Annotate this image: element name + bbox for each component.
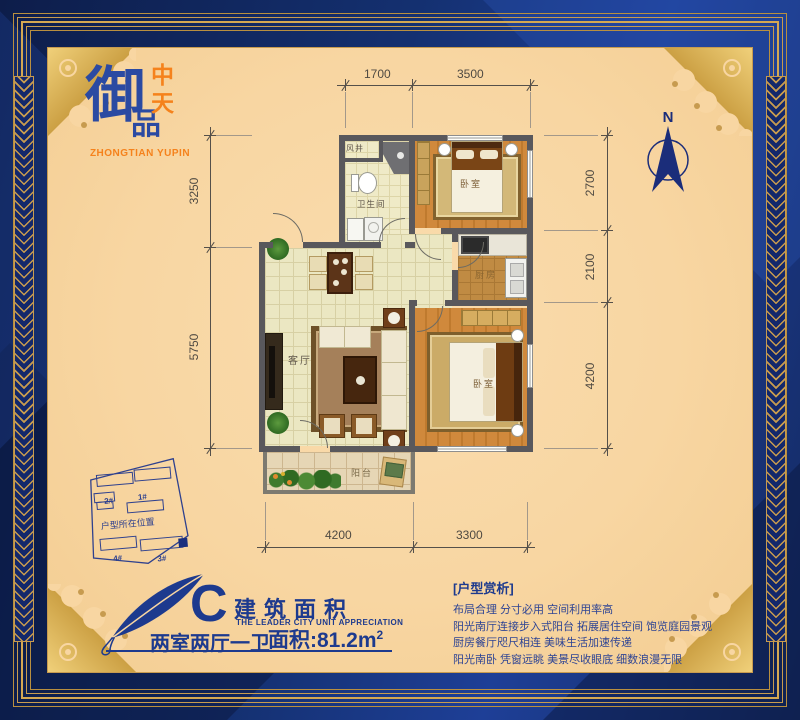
dim-tick <box>601 448 613 449</box>
dim-label: 4200 <box>583 354 597 398</box>
site-building <box>100 536 137 550</box>
dim-label: 2700 <box>583 161 597 205</box>
dim-tick <box>601 230 613 231</box>
wall <box>445 300 533 306</box>
north-label: N <box>663 109 674 126</box>
toilet-bowl <box>358 172 377 194</box>
analysis-title: [户型赏析] <box>453 578 745 597</box>
floor-plan: 风井 卫生间 卧室 厨房 客厅 卧室 阳台 <box>255 130 540 505</box>
dining-chair <box>355 256 373 272</box>
analysis-line: 布局合理 分寸必用 空间利用率高 <box>453 602 745 619</box>
wall <box>409 135 415 234</box>
extension-line <box>544 448 598 449</box>
loveseat <box>319 326 371 348</box>
extension-line <box>413 502 414 540</box>
sink-basin <box>510 280 524 294</box>
dim-label: 2100 <box>583 245 597 289</box>
dim-tick <box>265 541 266 553</box>
armchair <box>351 414 377 438</box>
dining-chair <box>355 274 373 290</box>
wall <box>330 446 415 452</box>
tv <box>269 346 275 398</box>
wall <box>339 135 533 141</box>
room-label-balcony: 阳台 <box>351 466 373 479</box>
bed-blanket <box>496 343 514 421</box>
side-table <box>383 308 405 328</box>
extension-line <box>527 502 528 540</box>
wall <box>405 242 415 248</box>
wall <box>339 242 381 248</box>
dim-tick <box>413 541 414 553</box>
door-arc-entry <box>273 213 303 242</box>
washer-door-icon <box>368 222 379 233</box>
title-underline <box>106 650 392 652</box>
analysis-line: 阳光南厅连接步入式阳台 拓展居住空间 饱览庭园景观 <box>453 619 745 636</box>
poster: 御 品 中 天 ZHONGTIAN YUPIN N <box>0 0 800 720</box>
nightstand <box>505 143 518 156</box>
dim-line-top <box>337 85 538 86</box>
wall <box>303 242 339 248</box>
lamp-icon <box>388 312 400 324</box>
room-label-living: 客厅 <box>288 352 312 367</box>
coffee-table <box>343 356 377 404</box>
chevron-column-left <box>14 76 34 642</box>
logo-cn-top: 中 <box>151 64 174 87</box>
wall <box>339 158 383 162</box>
nightstand <box>438 143 451 156</box>
bathroom-sink <box>347 218 364 241</box>
building-label: 2# <box>104 496 114 506</box>
plant <box>267 412 289 434</box>
window <box>447 135 503 141</box>
dim-label: 1700 <box>364 67 391 81</box>
wall <box>409 300 415 452</box>
window <box>527 344 533 388</box>
dim-tick <box>527 541 528 553</box>
building-label: 1# <box>138 492 148 502</box>
wall <box>259 242 265 452</box>
balcony-plants <box>269 470 341 490</box>
dim-tick <box>601 135 613 136</box>
dim-line-left <box>210 127 211 456</box>
dim-label: 5750 <box>187 325 201 369</box>
brand-logo: 御 品 中 天 ZHONGTIAN YUPIN <box>85 60 200 165</box>
room-label-wind-shaft: 风井 <box>346 143 364 154</box>
analysis-line: 厨房餐厅咫尺相连 美味生活加速传递 <box>453 635 745 652</box>
unit-location-marker <box>178 538 188 548</box>
chevron-column-right <box>766 76 786 642</box>
extension-line <box>216 247 252 248</box>
storage-bag <box>379 456 407 487</box>
extension-line <box>544 230 598 231</box>
flower-icon <box>287 480 292 485</box>
dim-tick <box>204 247 216 248</box>
bag-flap <box>384 462 404 478</box>
location-map: 2# 1# 4# 3# 户型所在位置 <box>79 452 197 579</box>
dim-tick <box>412 79 413 91</box>
extension-line <box>345 92 346 128</box>
room-label-bedroom-bottom: 卧室 <box>473 377 495 390</box>
cushion <box>324 418 340 434</box>
wardrobe <box>417 141 430 205</box>
nightstand <box>511 329 524 342</box>
vase-icon <box>356 376 365 385</box>
logo-en-caption: ZHONGTIAN YUPIN <box>85 148 195 159</box>
extension-line <box>530 92 531 128</box>
building-label: 4# <box>113 554 123 564</box>
dim-tick <box>601 302 613 303</box>
window <box>437 446 507 452</box>
extension-line <box>412 92 413 128</box>
dim-tick <box>345 79 346 91</box>
flower-icon <box>281 472 285 476</box>
extension-line <box>216 135 252 136</box>
dim-label: 3300 <box>456 528 483 542</box>
chevron-pattern <box>767 77 776 641</box>
window <box>527 150 533 198</box>
site-building <box>134 467 171 481</box>
dim-label: 3500 <box>457 67 484 81</box>
chevron-pattern <box>776 77 785 641</box>
dining-chair <box>309 256 327 272</box>
balcony-wall <box>263 490 415 494</box>
bed-headboard <box>514 343 522 421</box>
logo-cn-bottom: 天 <box>151 92 174 115</box>
compass: N <box>638 104 698 204</box>
extension-line <box>216 448 252 449</box>
balcony-wall <box>411 452 415 494</box>
plate-icon <box>341 269 347 275</box>
unit-letter: C <box>190 578 228 630</box>
extension-line <box>544 302 598 303</box>
analysis-block: [户型赏析] 布局合理 分寸必用 空间利用率高 阳光南厅连接步入式阳台 拓展居住… <box>453 578 745 668</box>
plate-icon <box>333 280 339 286</box>
tv-cabinet <box>265 333 283 410</box>
shower-head-icon <box>397 152 404 159</box>
kitchen-sink <box>505 258 527 298</box>
wall <box>339 135 345 248</box>
dim-tick <box>204 448 216 449</box>
extension-line <box>265 502 266 540</box>
dim-line-right <box>607 127 608 456</box>
balcony-wall <box>263 452 267 494</box>
area-exponent: 2 <box>377 628 384 642</box>
room-label-kitchen: 厨房 <box>475 268 497 281</box>
sink-basin <box>510 263 524 277</box>
cushion <box>356 418 372 434</box>
dining-chair <box>309 274 327 290</box>
wardrobe <box>461 310 521 326</box>
chevron-pattern <box>15 77 24 641</box>
pillow <box>483 348 495 378</box>
location-map-caption: 户型所在位置 <box>100 516 155 532</box>
wall <box>452 234 458 242</box>
room-label-bathroom: 卫生间 <box>357 198 386 210</box>
plate-icon <box>333 259 339 265</box>
sofa <box>381 330 407 430</box>
dim-tick <box>204 135 216 136</box>
plate-icon <box>342 258 348 264</box>
chevron-pattern <box>24 77 33 641</box>
extension-line <box>544 135 598 136</box>
pillow <box>483 386 495 416</box>
compass-needle-icon <box>652 126 684 192</box>
site-building <box>127 500 164 513</box>
room-label-bedroom-top: 卧室 <box>460 177 482 190</box>
dining-table <box>327 252 353 294</box>
flower-icon <box>273 474 278 479</box>
analysis-line: 阳光南卧 凭窗远眺 美景尽收眼底 细数浪漫无限 <box>453 652 745 669</box>
dim-tick <box>530 79 531 91</box>
building-label: 3# <box>157 554 167 564</box>
dim-line-bottom <box>257 547 535 548</box>
site-outline <box>86 458 191 568</box>
dim-label: 3250 <box>187 169 201 213</box>
pillow <box>456 150 474 159</box>
pillow <box>480 150 498 159</box>
dim-label: 4200 <box>325 528 352 542</box>
nightstand <box>511 424 524 437</box>
wall <box>452 270 458 302</box>
area-value: 面积:81.2m <box>268 629 377 652</box>
